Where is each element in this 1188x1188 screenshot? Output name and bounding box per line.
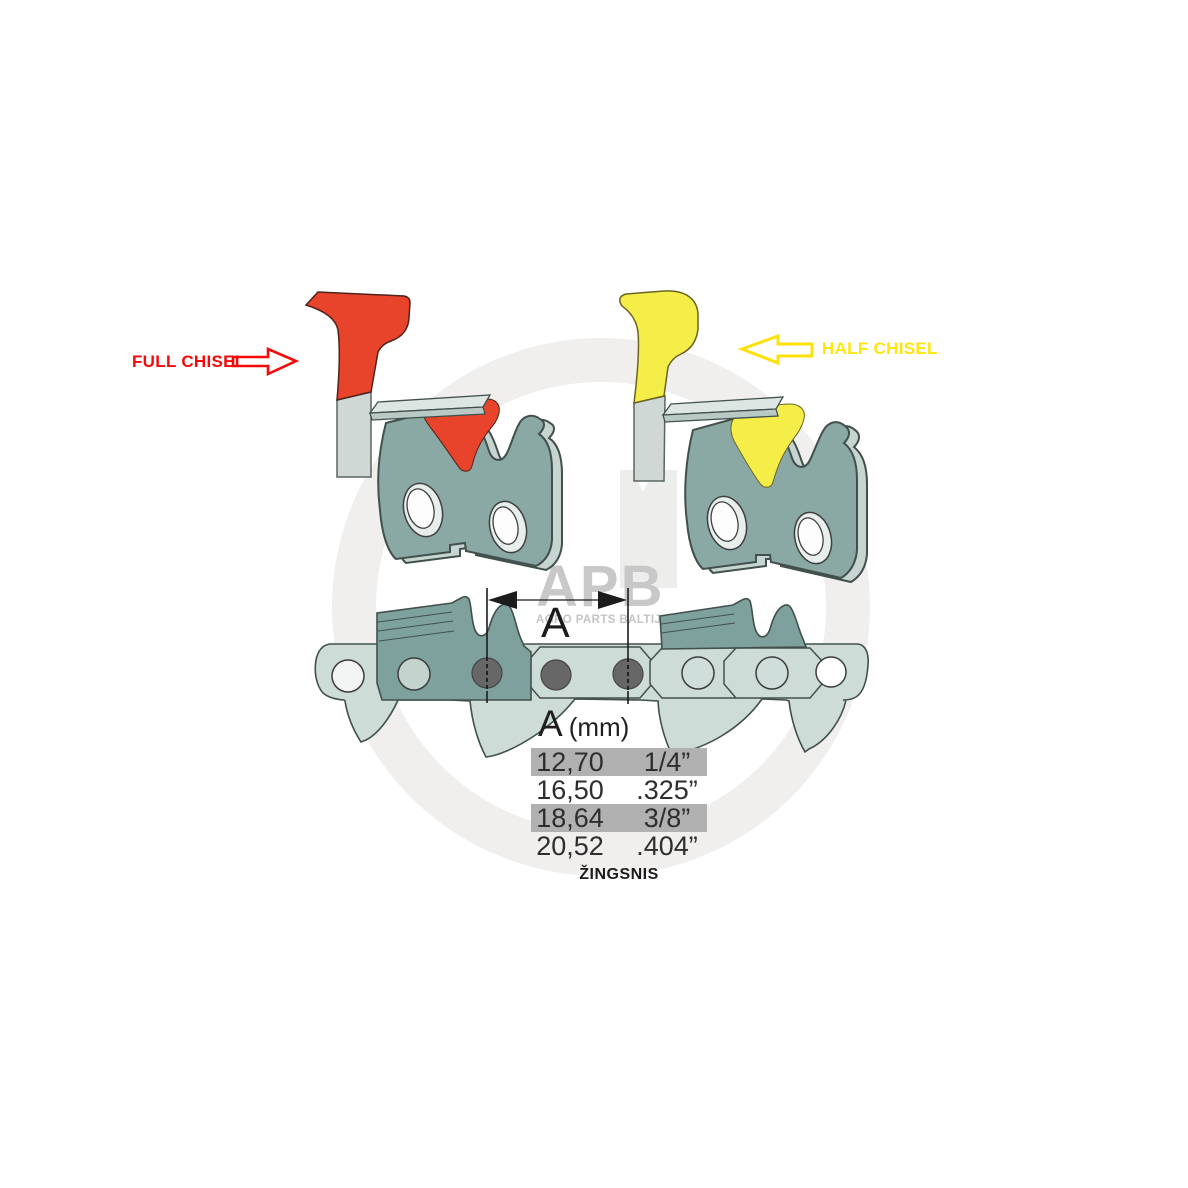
chain-hole — [756, 657, 788, 689]
table-row: 20,52 .404” — [531, 832, 707, 860]
full-chisel-edge-shape — [306, 292, 410, 400]
diagram-canvas: APB AGRO PARTS BALTIJA — [0, 0, 1188, 1188]
full-chisel-label: FULL CHISEL — [132, 352, 246, 372]
dimension-letter: A — [541, 599, 570, 648]
pitch-mm-value: 12,70 — [531, 747, 609, 778]
chain-cutter-right — [660, 599, 806, 649]
pitch-mm-value: 16,50 — [531, 775, 609, 806]
pitch-caption: ŽINGSNIS — [531, 866, 707, 884]
pitch-header-letter: A — [538, 703, 563, 744]
pitch-header-unit: (mm) — [569, 712, 630, 742]
profile-side-bar — [337, 392, 371, 477]
pitch-table: 12,70 1/4” 16,50 .325” 18,64 3/8” 20,52 … — [531, 748, 707, 860]
chain-hole — [816, 657, 846, 687]
pitch-table-header: A(mm) — [538, 703, 629, 745]
pitch-inch-value: .404” — [609, 831, 707, 862]
table-row: 12,70 1/4” — [531, 748, 707, 776]
chain-hole — [398, 658, 430, 690]
half-chisel-label: HALF CHISEL — [822, 339, 938, 359]
pitch-inch-value: 1/4” — [609, 747, 707, 778]
chain-hole — [332, 660, 364, 692]
chain-rivet — [541, 660, 571, 690]
full-chisel-cutter-link — [370, 395, 562, 570]
pitch-inch-value: 3/8” — [609, 803, 707, 834]
chain-hole — [682, 657, 714, 689]
table-row: 16,50 .325” — [531, 776, 707, 804]
table-row: 18,64 3/8” — [531, 804, 707, 832]
pitch-mm-value: 18,64 — [531, 803, 609, 834]
pitch-inch-value: .325” — [609, 775, 707, 806]
half-chisel-arrow-icon — [742, 336, 812, 363]
profile-side-bar — [634, 396, 665, 481]
chain-cutter-left — [377, 597, 531, 700]
half-chisel-cutter-link — [663, 397, 867, 582]
chain-diagram-graphic: APB AGRO PARTS BALTIJA — [0, 0, 1188, 1188]
pitch-mm-value: 20,52 — [531, 831, 609, 862]
